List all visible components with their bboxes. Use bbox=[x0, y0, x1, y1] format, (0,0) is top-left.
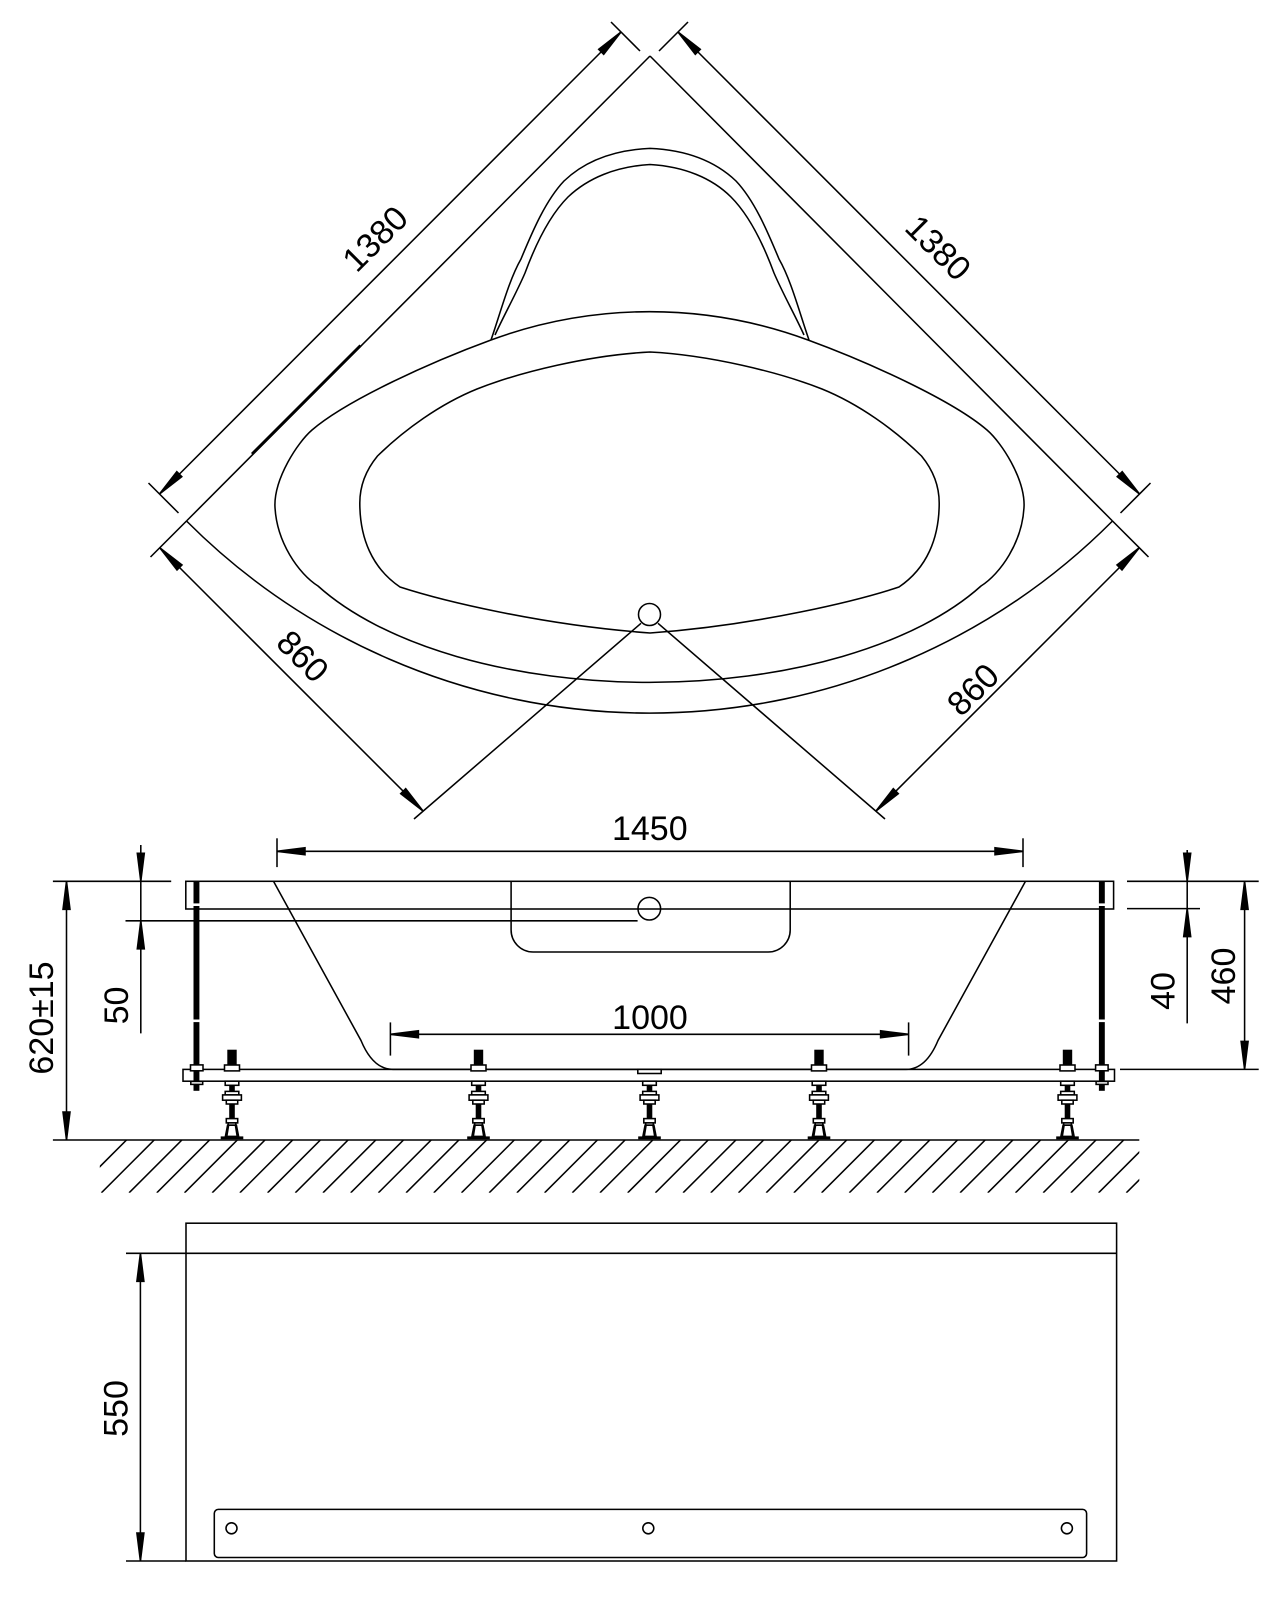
svg-text:860: 860 bbox=[940, 657, 1007, 724]
svg-text:860: 860 bbox=[269, 623, 336, 690]
svg-text:620±15: 620±15 bbox=[23, 961, 61, 1074]
svg-text:1380: 1380 bbox=[898, 208, 978, 288]
svg-text:550: 550 bbox=[98, 1380, 136, 1437]
svg-text:1450: 1450 bbox=[612, 810, 688, 848]
svg-text:460: 460 bbox=[1205, 948, 1243, 1005]
svg-text:40: 40 bbox=[1145, 972, 1183, 1010]
svg-text:50: 50 bbox=[98, 987, 136, 1025]
svg-text:1000: 1000 bbox=[612, 999, 688, 1037]
svg-text:1380: 1380 bbox=[335, 199, 415, 279]
